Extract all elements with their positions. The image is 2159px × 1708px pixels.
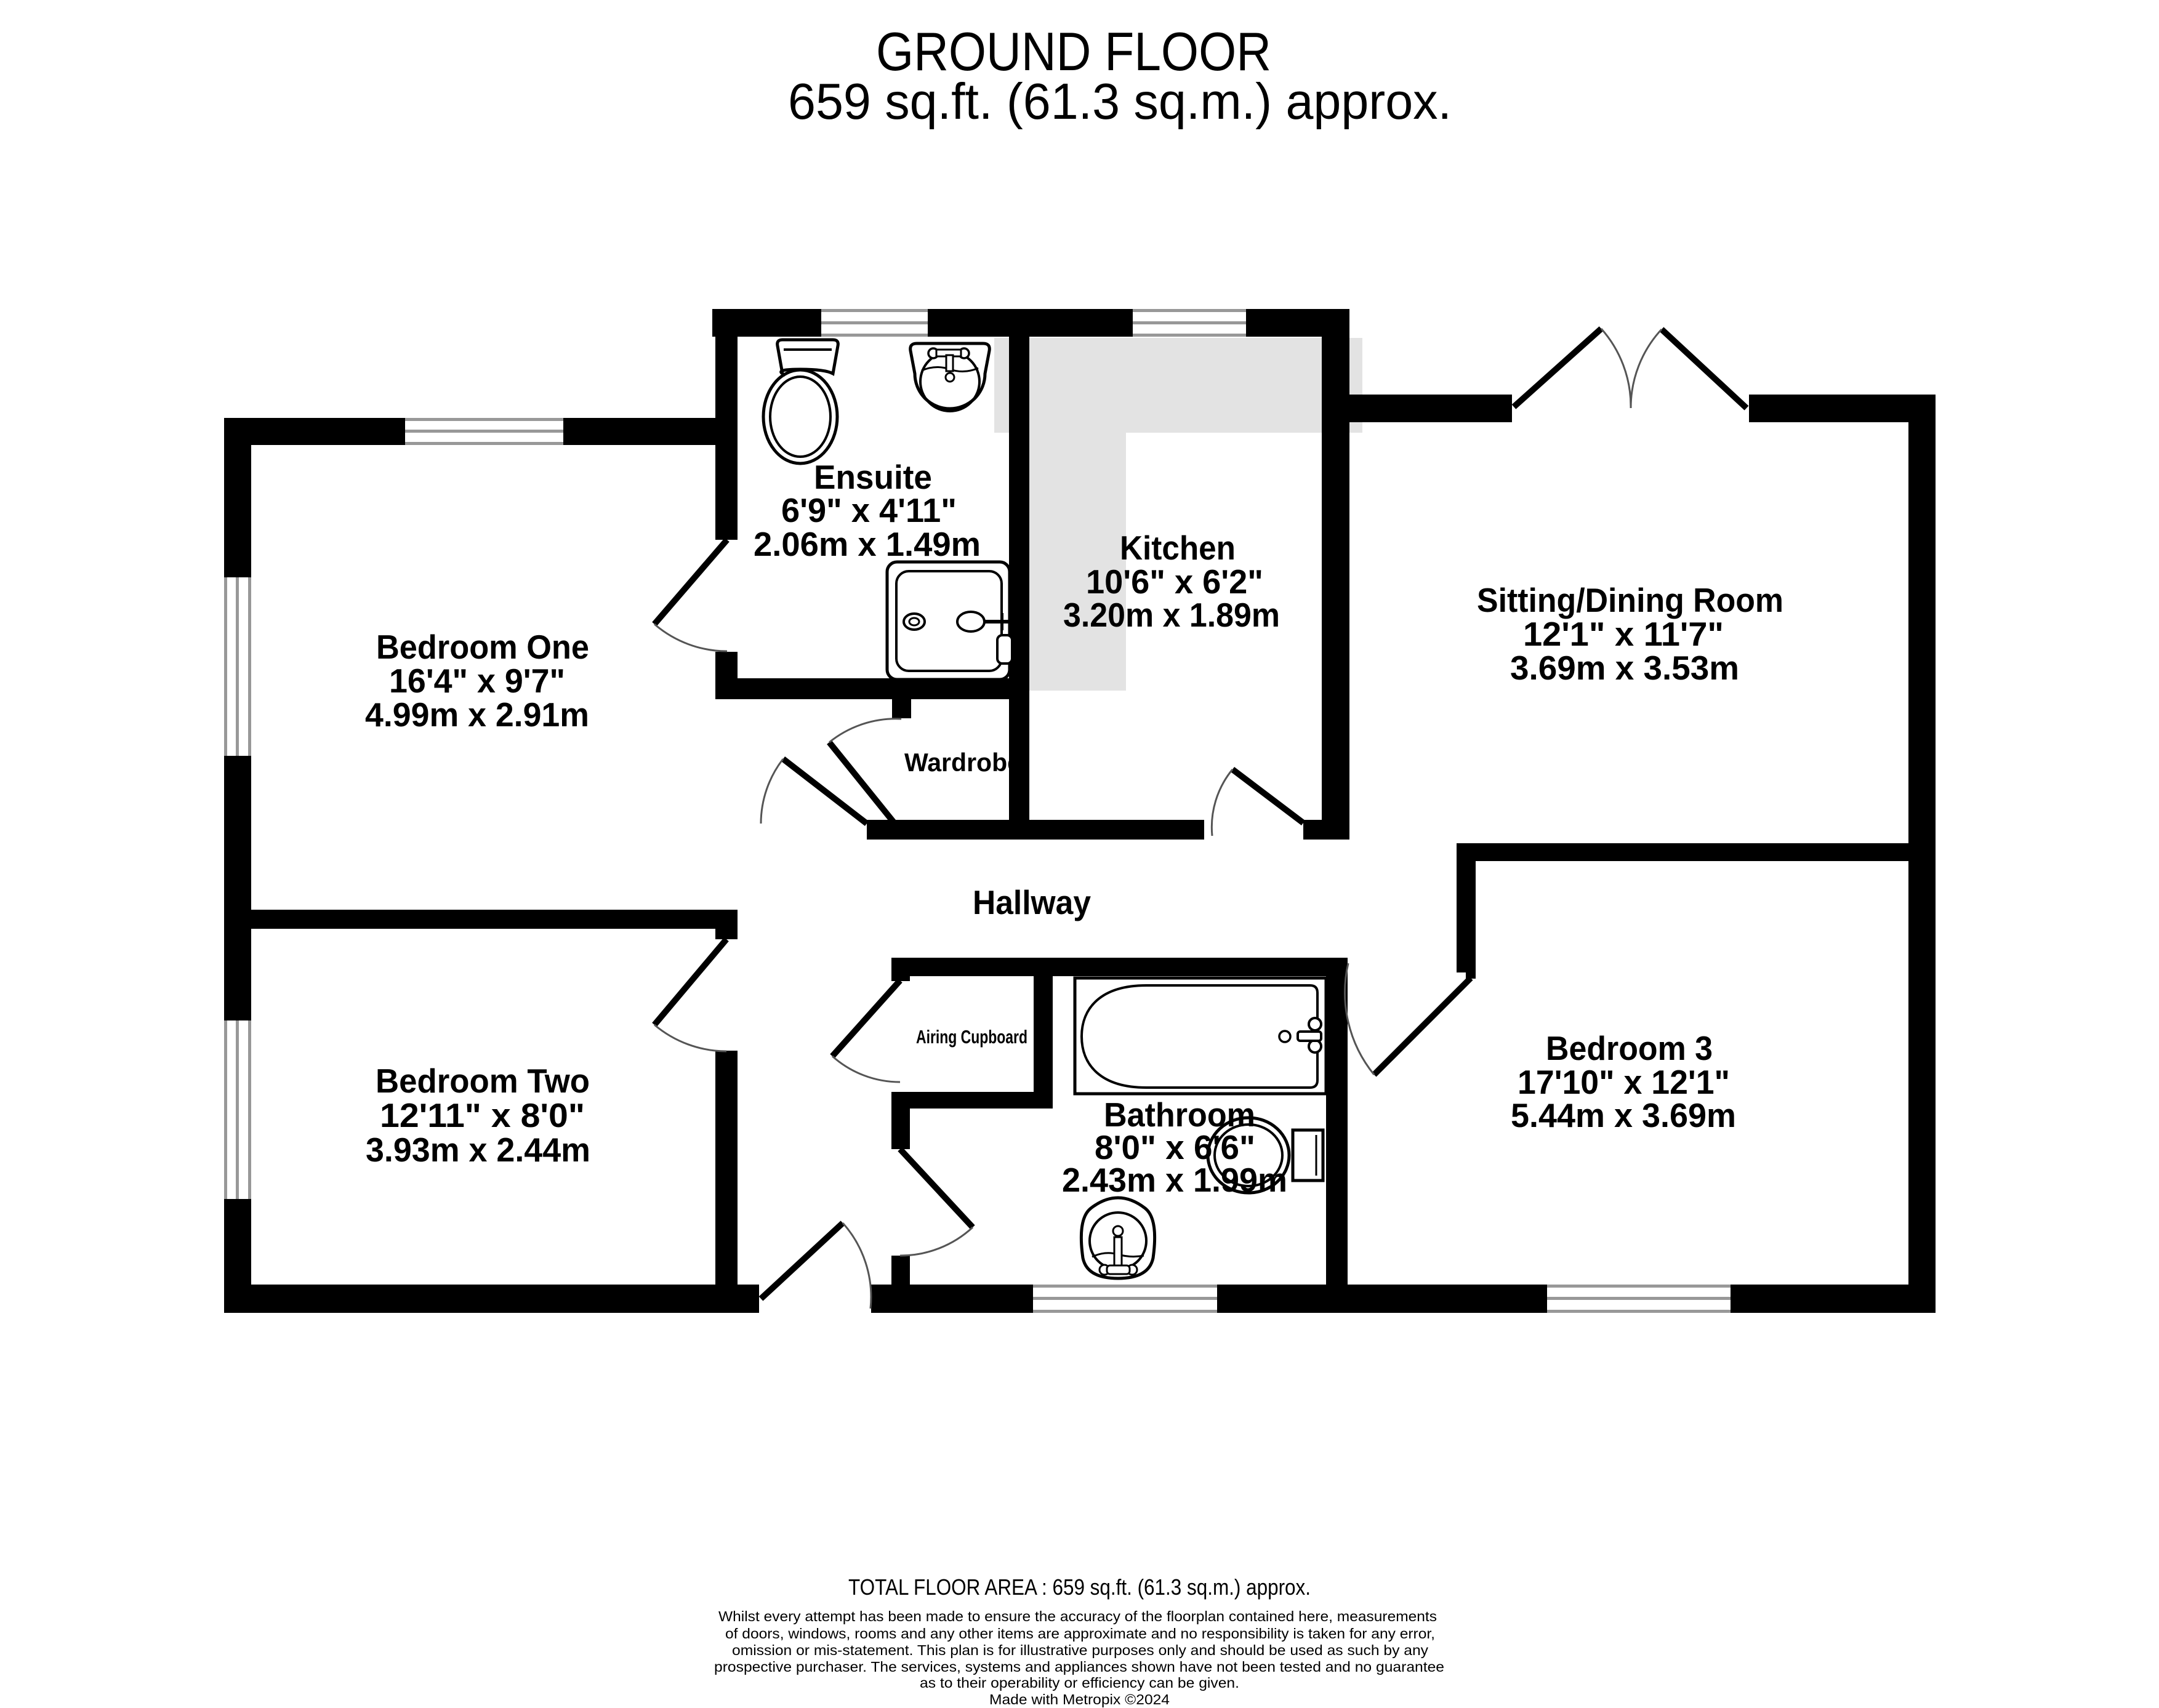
svg-text:4.99m x 2.91m: 4.99m x 2.91m bbox=[365, 696, 589, 734]
svg-text:omission or mis-statement. Thi: omission or mis-statement. This plan is … bbox=[732, 1642, 1428, 1658]
svg-text:2.06m x 1.49m: 2.06m x 1.49m bbox=[754, 525, 981, 563]
svg-text:2.43m x 1.99m: 2.43m x 1.99m bbox=[1062, 1161, 1287, 1199]
svg-text:17'10" x 12'1": 17'10" x 12'1" bbox=[1518, 1063, 1730, 1101]
svg-text:Whilst every attempt has been: Whilst every attempt has been made to en… bbox=[718, 1608, 1437, 1624]
svg-text:of doors, windows, rooms and a: of doors, windows, rooms and any other i… bbox=[725, 1626, 1435, 1642]
svg-text:Kitchen: Kitchen bbox=[1120, 529, 1236, 567]
svg-text:Wardrobe: Wardrobe bbox=[904, 748, 1021, 777]
svg-text:Ensuite: Ensuite bbox=[814, 458, 932, 496]
svg-text:Hallway: Hallway bbox=[973, 883, 1091, 921]
svg-text:659 sq.ft. (61.3 sq.m.) approx: 659 sq.ft. (61.3 sq.m.) approx. bbox=[788, 73, 1452, 130]
svg-text:as to their operability or eff: as to their operability or efficiency ca… bbox=[920, 1675, 1239, 1691]
svg-text:3.20m x 1.89m: 3.20m x 1.89m bbox=[1063, 596, 1280, 634]
svg-text:Bedroom 3: Bedroom 3 bbox=[1546, 1029, 1713, 1067]
svg-text:TOTAL FLOOR AREA : 659 sq.ft.: TOTAL FLOOR AREA : 659 sq.ft. (61.3 sq.m… bbox=[848, 1574, 1311, 1600]
svg-text:3.69m x 3.53m: 3.69m x 3.53m bbox=[1510, 649, 1739, 687]
svg-text:12'11" x 8'0": 12'11" x 8'0" bbox=[380, 1096, 585, 1134]
svg-text:5.44m x 3.69m: 5.44m x 3.69m bbox=[1511, 1096, 1736, 1134]
svg-text:3.93m x 2.44m: 3.93m x 2.44m bbox=[366, 1131, 590, 1169]
svg-text:12'1" x 11'7": 12'1" x 11'7" bbox=[1523, 615, 1724, 653]
svg-text:prospective purchaser. The ser: prospective purchaser. The services, sys… bbox=[714, 1659, 1444, 1675]
svg-text:Made with Metropix ©2024: Made with Metropix ©2024 bbox=[989, 1691, 1170, 1707]
svg-text:10'6" x 6'2": 10'6" x 6'2" bbox=[1086, 563, 1263, 601]
svg-text:Airing Cupboard: Airing Cupboard bbox=[916, 1026, 1027, 1048]
svg-text:6'9" x 4'11": 6'9" x 4'11" bbox=[781, 491, 957, 529]
svg-text:16'4" x 9'7": 16'4" x 9'7" bbox=[389, 662, 565, 700]
svg-text:Bedroom Two: Bedroom Two bbox=[376, 1062, 590, 1100]
svg-text:Sitting/Dining Room: Sitting/Dining Room bbox=[1477, 581, 1783, 619]
svg-text:Bedroom One: Bedroom One bbox=[376, 628, 589, 666]
